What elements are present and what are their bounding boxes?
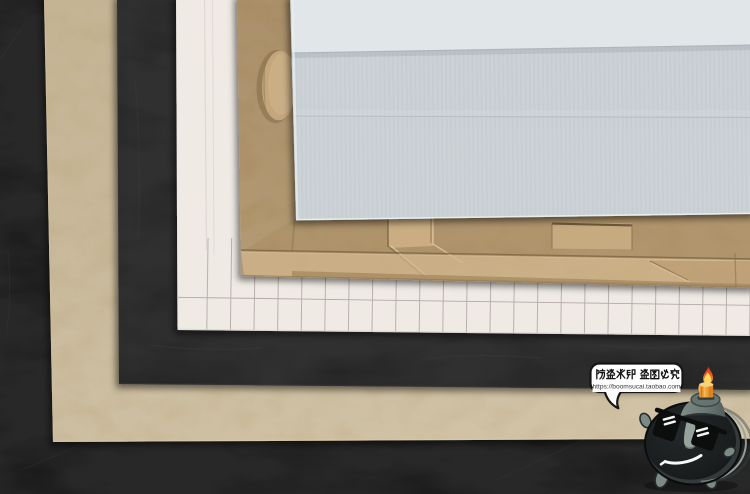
svg-text:https://boomsucai.taobao.com: https://boomsucai.taobao.com — [593, 383, 681, 390]
